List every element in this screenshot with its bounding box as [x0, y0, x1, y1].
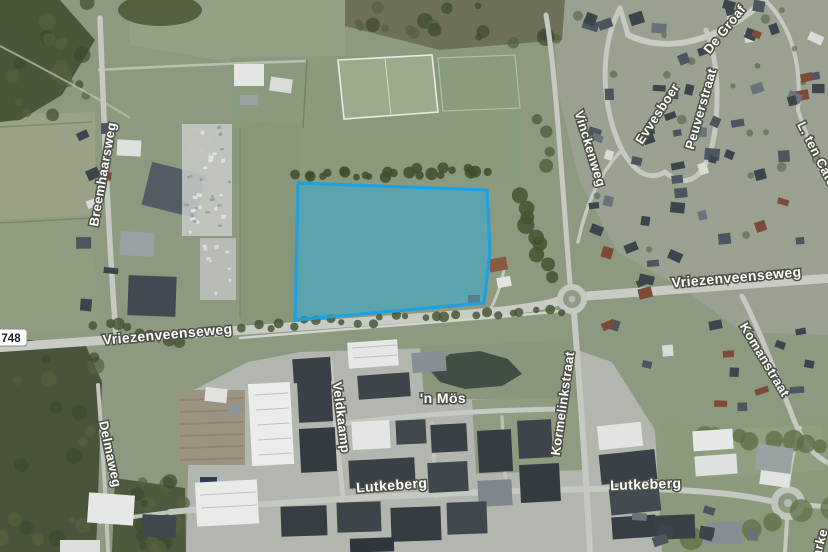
map-canvas[interactable]: Breemhaarsweg Vriezenveenseweg Vriezenve…	[0, 0, 828, 552]
road-shield-n748: 748	[0, 329, 27, 346]
street-label-lutkeberg-east: Lutkeberg	[610, 475, 682, 493]
selected-parcel-polygon[interactable]	[295, 183, 490, 320]
aerial-map: Breemhaarsweg Vriezenveenseweg Vriezenve…	[0, 0, 828, 552]
road-shield-number: 748	[1, 333, 21, 345]
street-label-n-mos: 'n Mös	[420, 390, 466, 406]
